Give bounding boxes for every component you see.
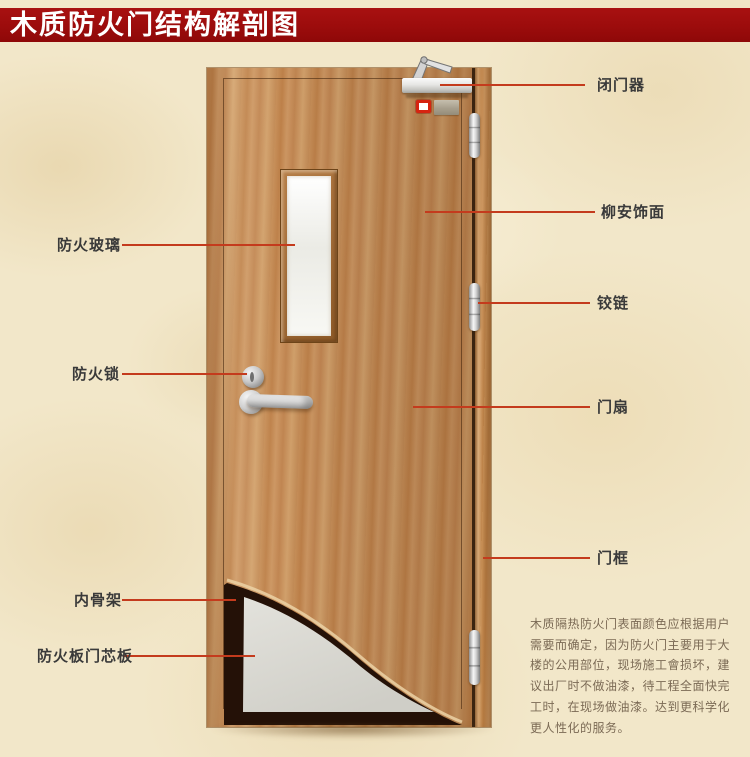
label-door-frame: 门框: [597, 551, 629, 566]
label-hinge: 铰链: [597, 296, 629, 311]
callout-line-hinge: [478, 302, 590, 304]
door-leaf: [207, 68, 472, 727]
hinge-bottom: [469, 630, 480, 685]
door-illustration: [207, 68, 491, 727]
door-handle-lever: [247, 394, 313, 409]
window-glass: [287, 176, 331, 336]
title-banner: 木质防火门结构解剖图: [0, 8, 750, 42]
callout-line-door-leaf: [413, 406, 590, 408]
label-inner-skeleton: 内骨架: [74, 593, 122, 608]
lock-cylinder: [242, 366, 264, 388]
callout-line-door-frame: [483, 557, 590, 559]
callout-line-lauan-veneer: [425, 211, 595, 213]
door-frame-strip: [475, 68, 491, 727]
description-text: 木质隔热防火门表面颜色应根据用户 需要而确定，因为防火门主要用于大 楼的公用部位…: [530, 614, 730, 738]
label-fire-glass: 防火玻璃: [57, 238, 121, 253]
label-door-closer: 闭门器: [597, 78, 645, 93]
page-title: 木质防火门结构解剖图: [10, 8, 300, 42]
alarm-indicator-icon: [416, 100, 431, 113]
closer-label-plate: [434, 100, 459, 115]
callout-line-door-closer: [440, 84, 585, 86]
callout-line-fire-lock: [122, 373, 247, 375]
fire-glass-window: [280, 169, 338, 343]
door-closer-shadow: [406, 94, 468, 98]
label-lauan-veneer: 柳安饰面: [601, 205, 665, 220]
page-background: 木质防火门结构解剖图: [0, 0, 750, 757]
label-fire-lock: 防火锁: [72, 367, 120, 382]
door-cutaway: [210, 573, 474, 727]
door-shadow: [212, 725, 494, 739]
callout-line-fire-glass: [122, 244, 295, 246]
callout-line-inner-skeleton: [122, 599, 236, 601]
hinge-top: [469, 113, 480, 158]
label-core-board: 防火板门芯板: [37, 649, 133, 664]
label-door-leaf: 门扇: [597, 400, 629, 415]
callout-line-core-board: [123, 655, 255, 657]
hinge-middle: [469, 283, 480, 331]
